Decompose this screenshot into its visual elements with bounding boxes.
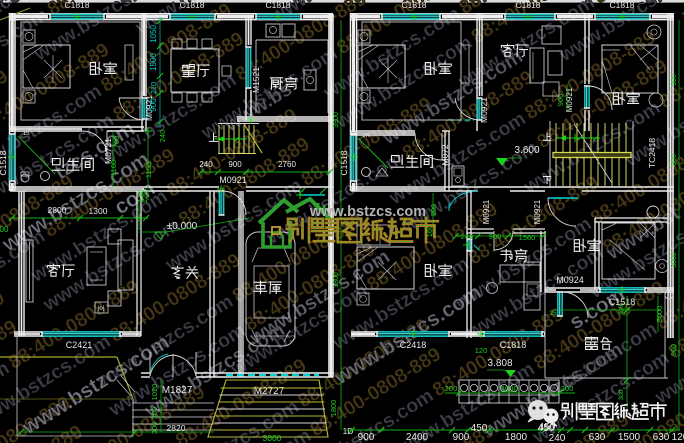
- svg-text:C2421: C2421: [66, 340, 93, 350]
- svg-text:C1818: C1818: [515, 0, 540, 10]
- svg-text:C1818: C1818: [265, 0, 290, 10]
- svg-text:240: 240: [461, 232, 474, 241]
- svg-text:1150: 1150: [144, 162, 153, 178]
- svg-text:900: 900: [489, 232, 502, 241]
- svg-text:00: 00: [0, 225, 9, 234]
- svg-text:900: 900: [453, 432, 470, 443]
- svg-text:1K: 1K: [362, 132, 371, 139]
- svg-text:TC2418: TC2418: [647, 138, 657, 169]
- svg-text:2400: 2400: [406, 432, 429, 443]
- svg-text:2760: 2760: [278, 160, 296, 169]
- svg-text:800: 800: [671, 154, 678, 166]
- svg-text:900: 900: [429, 204, 438, 217]
- svg-text:630: 630: [589, 432, 606, 443]
- svg-text:2820: 2820: [167, 423, 186, 433]
- svg-text:200: 200: [445, 384, 458, 393]
- svg-text:3.600: 3.600: [514, 145, 539, 156]
- svg-text:M0921: M0921: [533, 199, 542, 224]
- svg-text:240: 240: [158, 130, 167, 143]
- svg-text:200: 200: [561, 384, 574, 393]
- svg-text:3900: 3900: [333, 112, 340, 128]
- svg-text:240: 240: [199, 160, 213, 169]
- svg-text:900: 900: [228, 160, 242, 169]
- svg-text:C1818: C1818: [609, 0, 634, 10]
- svg-text:|o|: |o|: [98, 306, 105, 312]
- svg-text:900: 900: [671, 74, 678, 86]
- svg-text:960: 960: [671, 344, 678, 356]
- svg-text:3.808: 3.808: [487, 358, 512, 369]
- svg-text:300: 300: [618, 304, 625, 315]
- svg-text:3000: 3000: [671, 252, 678, 268]
- svg-text:1500: 1500: [618, 432, 641, 443]
- svg-text:120: 120: [672, 432, 684, 443]
- svg-text:630: 630: [653, 432, 670, 443]
- svg-text:1800: 1800: [333, 272, 340, 288]
- svg-text:M0921: M0921: [479, 97, 489, 123]
- svg-text:M1827: M1827: [162, 385, 193, 396]
- svg-text:210: 210: [149, 82, 158, 95]
- svg-text:C1518: C1518: [339, 150, 349, 175]
- svg-text:900: 900: [149, 98, 158, 112]
- svg-text:1160: 1160: [109, 160, 118, 176]
- svg-text:300: 300: [618, 389, 625, 400]
- svg-text:25: 25: [549, 310, 557, 317]
- svg-text:120: 120: [136, 190, 145, 203]
- svg-text:C2418: C2418: [400, 340, 427, 350]
- svg-text:1050: 1050: [149, 25, 158, 43]
- svg-text:1800: 1800: [505, 432, 528, 443]
- svg-text:1300: 1300: [89, 206, 108, 216]
- svg-text:15: 15: [22, 130, 30, 137]
- svg-text:M0921: M0921: [482, 199, 491, 224]
- svg-text:1800: 1800: [329, 400, 338, 417]
- svg-text:300: 300: [150, 407, 159, 420]
- svg-text:1500: 1500: [149, 53, 158, 71]
- svg-text:900: 900: [358, 432, 375, 443]
- svg-text:C1818: C1818: [64, 0, 89, 10]
- svg-text:M0921: M0921: [565, 87, 574, 112]
- svg-text:3000: 3000: [263, 433, 282, 443]
- svg-text:±0.000: ±0.000: [167, 221, 198, 232]
- svg-text:3000: 3000: [655, 306, 664, 323]
- svg-text:C1518: C1518: [0, 150, 8, 175]
- svg-text:450: 450: [471, 423, 488, 434]
- svg-text:C1818: C1818: [179, 0, 204, 10]
- svg-text:450: 450: [538, 423, 555, 434]
- svg-text:240: 240: [549, 433, 566, 443]
- svg-text:1560: 1560: [519, 233, 536, 242]
- svg-text:C1818: C1818: [500, 340, 527, 350]
- svg-text:2800: 2800: [48, 205, 67, 215]
- svg-text:120: 120: [475, 346, 488, 355]
- svg-text:C1818: C1818: [401, 0, 426, 10]
- svg-text:1020: 1020: [150, 384, 159, 401]
- svg-text:3000: 3000: [500, 385, 518, 394]
- svg-text:M0924: M0924: [556, 275, 584, 285]
- svg-text:M0921: M0921: [219, 175, 247, 185]
